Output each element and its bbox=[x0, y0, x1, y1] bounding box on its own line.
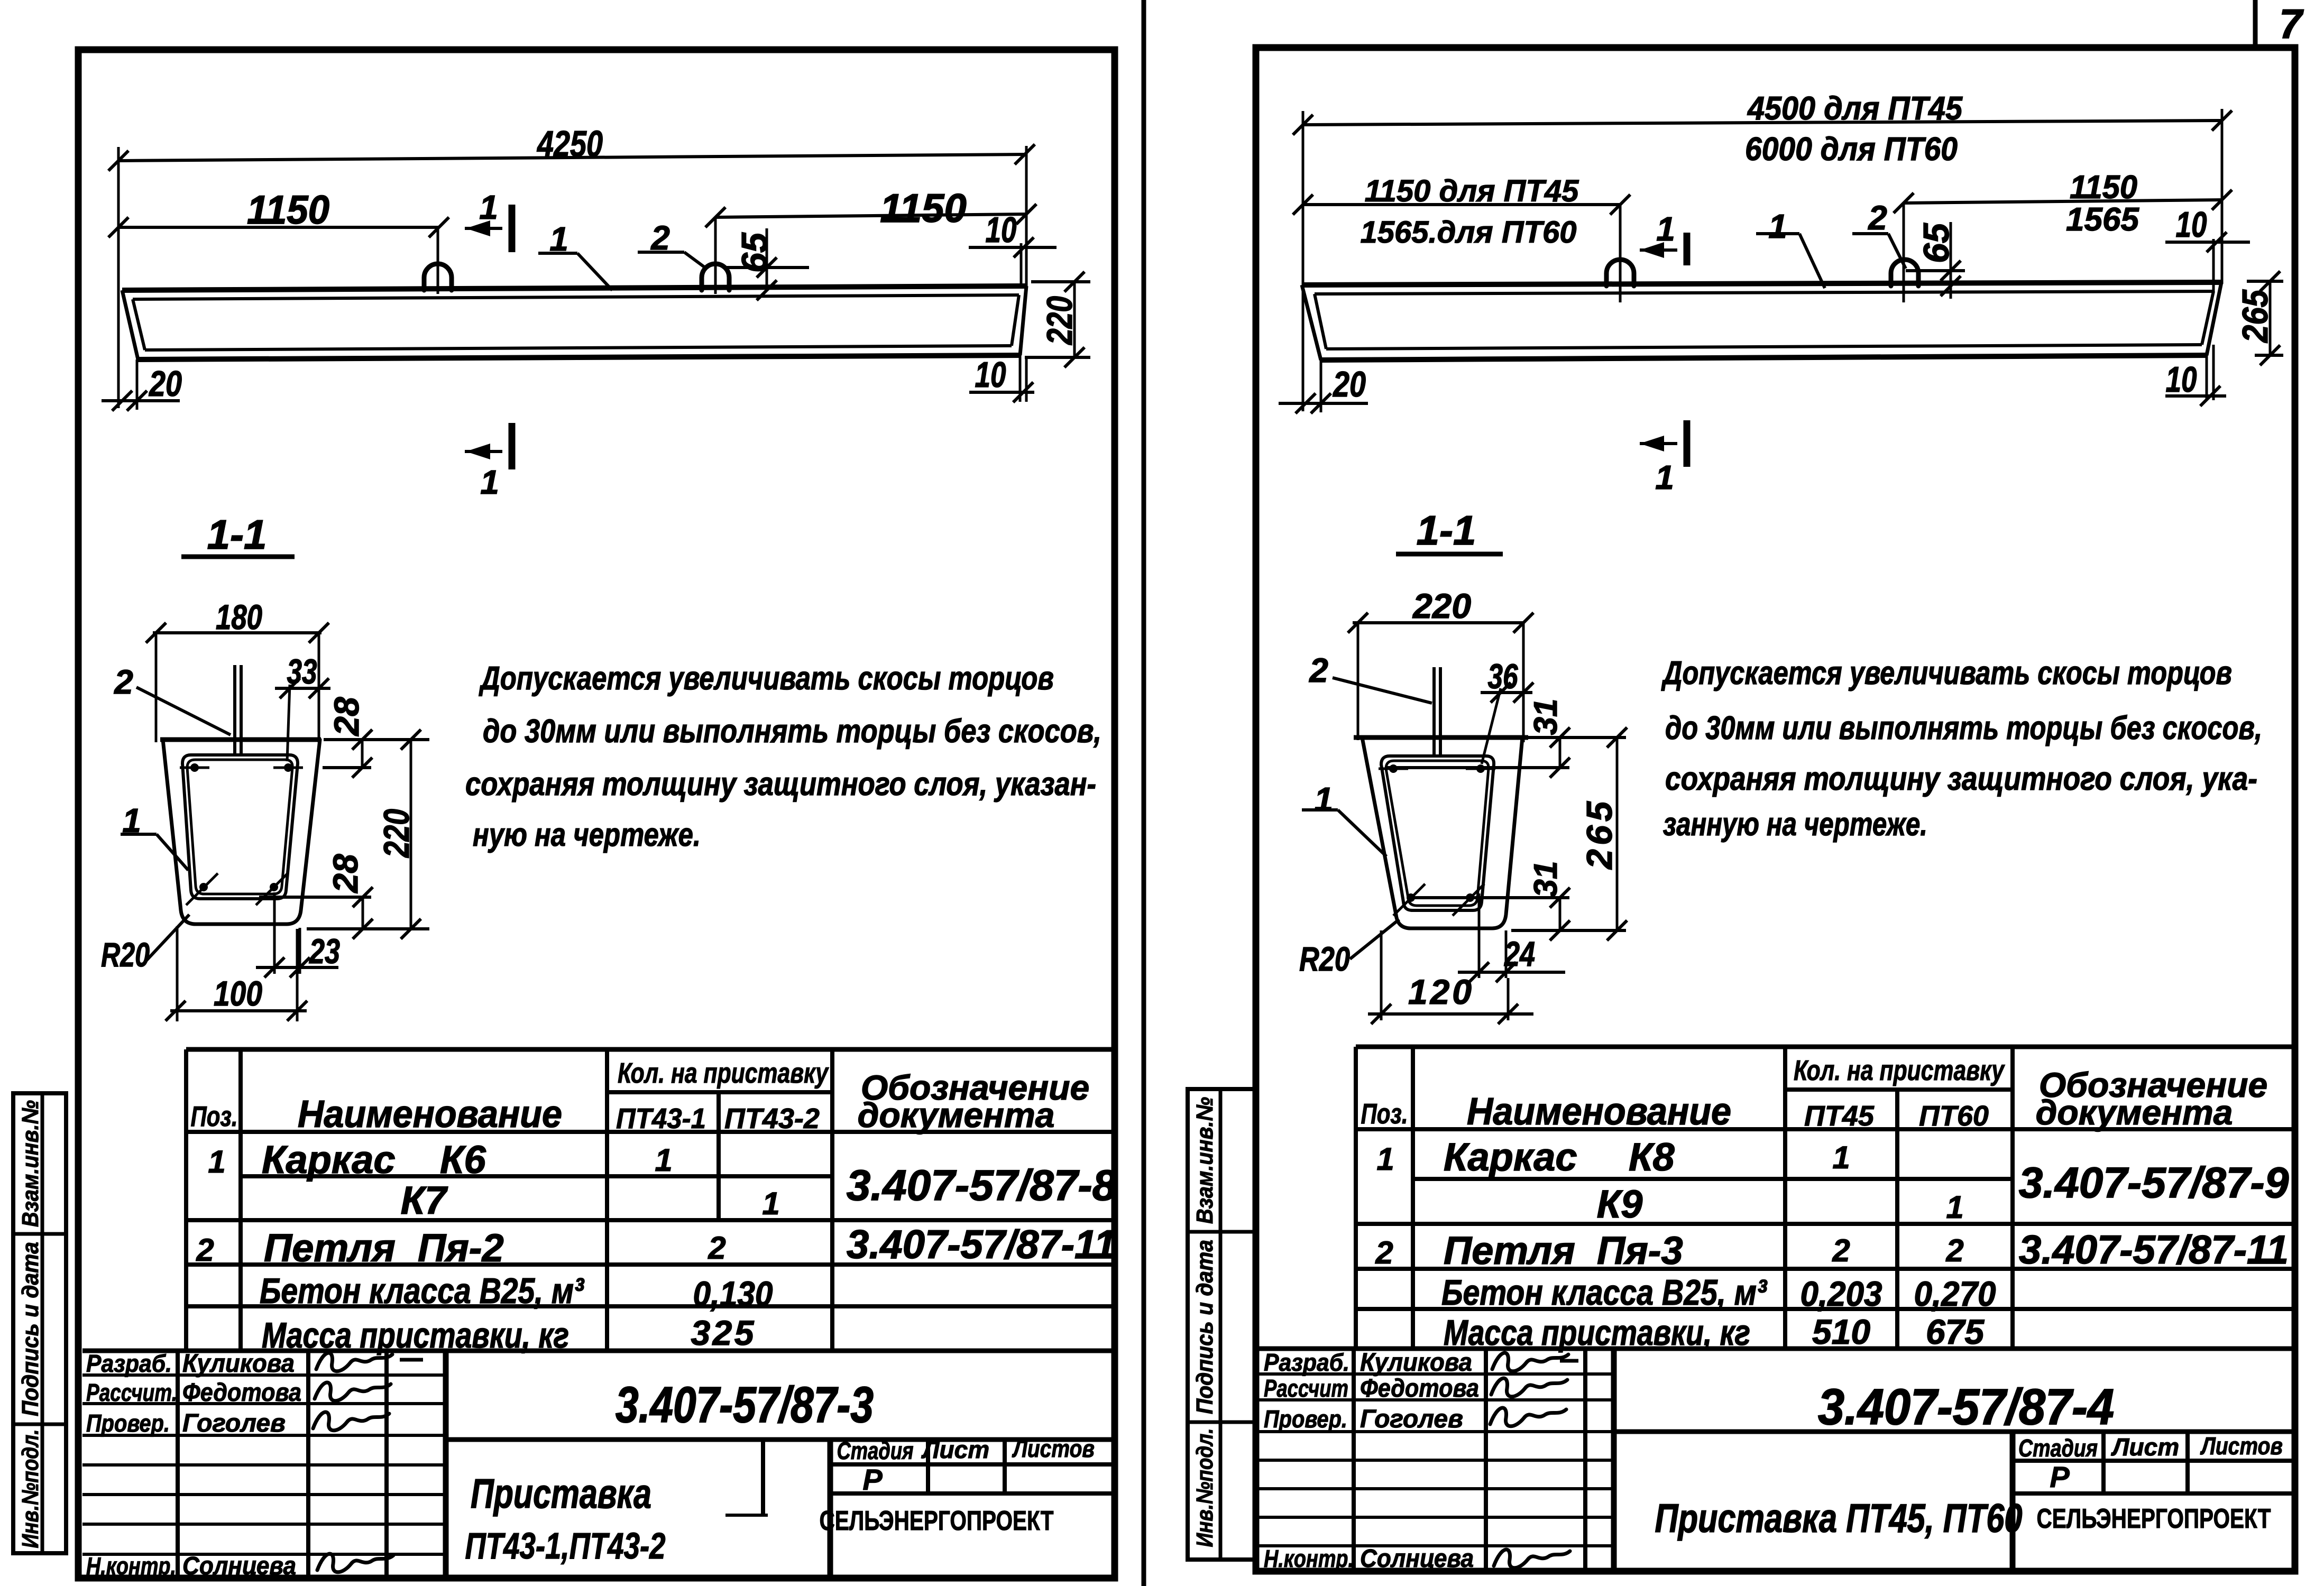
svg-text:120: 120 bbox=[1408, 972, 1472, 1011]
svg-text:Н.контр.: Н.контр. bbox=[1264, 1545, 1354, 1572]
svg-text:1150 для ПТ45: 1150 для ПТ45 bbox=[1365, 174, 1579, 208]
svg-text:К6: К6 bbox=[440, 1138, 486, 1182]
svg-text:1: 1 bbox=[549, 220, 568, 258]
svg-text:510: 510 bbox=[1812, 1312, 1870, 1351]
svg-text:3.407-57/87-3: 3.407-57/87-3 bbox=[616, 1377, 874, 1433]
svg-text:1: 1 bbox=[655, 1142, 672, 1178]
svg-text:20: 20 bbox=[148, 364, 182, 404]
svg-text:Инв.№подл.: Инв.№подл. bbox=[1192, 1428, 1218, 1547]
svg-text:1: 1 bbox=[480, 463, 499, 501]
svg-text:7: 7 bbox=[2279, 1, 2304, 47]
svg-text:10: 10 bbox=[2166, 359, 2197, 400]
svg-text:Наименование: Наименование bbox=[298, 1093, 562, 1136]
svg-text:Лист: Лист bbox=[2111, 1433, 2179, 1461]
svg-text:Гоголев: Гоголев bbox=[1360, 1405, 1463, 1433]
svg-text:1: 1 bbox=[762, 1186, 779, 1221]
svg-text:265: 265 bbox=[2235, 289, 2275, 344]
svg-text:Поз.: Поз. bbox=[1361, 1098, 1408, 1130]
svg-text:3.407-57/87-11: 3.407-57/87-11 bbox=[2019, 1228, 2289, 1273]
svg-text:2: 2 bbox=[650, 219, 670, 257]
svg-text:документа: документа bbox=[858, 1095, 1055, 1135]
svg-text:3.407-57/87-11: 3.407-57/87-11 bbox=[847, 1222, 1116, 1267]
svg-text:31: 31 bbox=[1528, 699, 1564, 735]
svg-text:Р: Р bbox=[862, 1463, 883, 1496]
svg-text:R20: R20 bbox=[101, 936, 150, 974]
svg-text:Наименование: Наименование bbox=[1467, 1091, 1731, 1133]
svg-text:Провер.: Провер. bbox=[86, 1409, 170, 1437]
svg-text:2: 2 bbox=[1832, 1233, 1850, 1268]
svg-text:Допускается увеличивать скосы: Допускается увеличивать скосы торцов bbox=[479, 660, 1054, 697]
svg-text:1: 1 bbox=[1655, 458, 1674, 496]
svg-text:занную на чертеже.: занную на чертеже. bbox=[1663, 806, 1927, 843]
svg-text:R20: R20 bbox=[1299, 940, 1350, 978]
svg-text:23: 23 bbox=[308, 932, 340, 971]
svg-text:24: 24 bbox=[1503, 934, 1535, 973]
svg-text:1: 1 bbox=[208, 1144, 225, 1179]
svg-text:2: 2 bbox=[708, 1230, 725, 1266]
svg-text:2: 2 bbox=[1868, 199, 1887, 237]
svg-text:28: 28 bbox=[327, 697, 366, 737]
svg-text:сохраняя толщину защитного сло: сохраняя толщину защитного слоя, указан- bbox=[465, 766, 1096, 803]
svg-text:Листов: Листов bbox=[1012, 1435, 1095, 1462]
svg-text:1: 1 bbox=[1832, 1140, 1850, 1175]
svg-text:Н.контр.: Н.контр. bbox=[86, 1552, 176, 1580]
svg-text:Федотова: Федотова bbox=[1360, 1375, 1479, 1403]
svg-text:Петля: Петля bbox=[1444, 1229, 1575, 1273]
svg-text:ПТ45: ПТ45 bbox=[1804, 1100, 1875, 1132]
svg-text:Кол. на приставку: Кол. на приставку bbox=[1794, 1055, 2005, 1086]
svg-text:Каркас: Каркас bbox=[1444, 1135, 1577, 1179]
svg-text:Куликова: Куликова bbox=[182, 1350, 295, 1378]
svg-text:Инв.№подл.: Инв.№подл. bbox=[17, 1430, 43, 1548]
svg-text:4250: 4250 bbox=[536, 123, 603, 164]
svg-text:Приставка: Приставка bbox=[471, 1470, 651, 1517]
svg-text:220: 220 bbox=[1412, 586, 1471, 625]
svg-text:100: 100 bbox=[214, 974, 262, 1013]
svg-text:325: 325 bbox=[691, 1313, 755, 1352]
svg-text:до 30мм или выполнять торцы бе: до 30мм или выполнять торцы без скосов, bbox=[483, 713, 1101, 750]
svg-text:Кол. на приставку: Кол. на приставку bbox=[618, 1057, 829, 1089]
svg-text:ПТ60: ПТ60 bbox=[1919, 1100, 1989, 1132]
svg-text:65: 65 bbox=[734, 232, 775, 273]
svg-text:Разраб.: Разраб. bbox=[86, 1350, 172, 1377]
svg-text:220: 220 bbox=[1040, 296, 1080, 346]
svg-text:2: 2 bbox=[1945, 1233, 1963, 1268]
svg-text:31: 31 bbox=[1528, 861, 1564, 898]
svg-text:Солнцева: Солнцева bbox=[1360, 1545, 1474, 1573]
svg-text:Взам.инв.№: Взам.инв.№ bbox=[1192, 1097, 1218, 1224]
svg-text:3.407-57/87-9: 3.407-57/87-9 bbox=[2019, 1159, 2289, 1207]
svg-text:СЕЛЬЭНЕРГОПРОЕКТ: СЕЛЬЭНЕРГОПРОЕКТ bbox=[2037, 1504, 2271, 1534]
svg-text:10: 10 bbox=[975, 355, 1006, 395]
svg-text:1150: 1150 bbox=[880, 186, 966, 231]
svg-text:3.407-57/87-8: 3.407-57/87-8 bbox=[847, 1161, 1117, 1210]
svg-text:Гоголев: Гоголев bbox=[182, 1409, 286, 1437]
svg-text:ПТ43-2: ПТ43-2 bbox=[724, 1103, 820, 1135]
svg-text:3.407-57/87-4: 3.407-57/87-4 bbox=[1818, 1379, 2114, 1435]
svg-text:2: 2 bbox=[196, 1232, 214, 1268]
svg-text:1: 1 bbox=[1768, 207, 1787, 245]
svg-text:4500 для ПТ45: 4500 для ПТ45 bbox=[1747, 90, 1963, 127]
svg-text:Стадия: Стадия bbox=[837, 1437, 914, 1464]
svg-text:1-1: 1-1 bbox=[207, 511, 267, 558]
svg-text:33: 33 bbox=[287, 652, 317, 691]
svg-text:1565.для ПТ60: 1565.для ПТ60 bbox=[1360, 215, 1576, 250]
svg-text:Рассчит: Рассчит bbox=[1264, 1375, 1348, 1402]
svg-text:Подпись и дата: Подпись и дата bbox=[1192, 1240, 1218, 1414]
svg-text:6000 для ПТ60: 6000 для ПТ60 bbox=[1745, 131, 1958, 168]
svg-text:180: 180 bbox=[216, 597, 262, 637]
svg-text:Поз.: Поз. bbox=[191, 1101, 238, 1132]
svg-text:2: 2 bbox=[1375, 1235, 1393, 1270]
svg-text:Федотова: Федотова bbox=[182, 1379, 301, 1407]
svg-text:до 30мм или выполнять торцы бе: до 30мм или выполнять торцы без скосов, bbox=[1665, 710, 2262, 746]
svg-text:Куликова: Куликова bbox=[1360, 1349, 1472, 1377]
svg-text:0,130: 0,130 bbox=[693, 1274, 773, 1313]
svg-text:1: 1 bbox=[122, 801, 141, 840]
svg-text:ПТ43-1,ПТ43-2: ПТ43-1,ПТ43-2 bbox=[465, 1525, 666, 1566]
svg-text:0,203: 0,203 bbox=[1801, 1274, 1882, 1313]
svg-text:1: 1 bbox=[1376, 1141, 1394, 1177]
svg-text:1150: 1150 bbox=[2070, 169, 2137, 206]
svg-text:Лист: Лист bbox=[921, 1436, 989, 1463]
svg-text:ную на чертеже.: ную на чертеже. bbox=[473, 817, 701, 853]
svg-text:Листов: Листов bbox=[2200, 1432, 2283, 1460]
svg-text:675: 675 bbox=[1926, 1312, 1985, 1351]
svg-text:1565: 1565 bbox=[2066, 201, 2139, 238]
svg-text:Стадия: Стадия bbox=[2018, 1434, 2098, 1462]
svg-text:Допускается увеличивать скосы: Допускается увеличивать скосы торцов bbox=[1661, 655, 2232, 691]
svg-text:1150: 1150 bbox=[247, 188, 329, 233]
svg-text:Взам.инв.№: Взам.инв.№ bbox=[17, 1100, 43, 1227]
svg-text:ПТ43-1: ПТ43-1 bbox=[616, 1103, 706, 1135]
svg-text:К9: К9 bbox=[1597, 1182, 1643, 1226]
svg-text:1: 1 bbox=[1656, 210, 1675, 248]
svg-text:Петля: Петля bbox=[264, 1226, 396, 1270]
svg-text:20: 20 bbox=[1332, 364, 1366, 404]
svg-text:К7: К7 bbox=[401, 1178, 448, 1222]
svg-text:Приставка ПТ45, ПТ60: Приставка ПТ45, ПТ60 bbox=[1655, 1496, 2023, 1541]
svg-text:1: 1 bbox=[1946, 1189, 1963, 1225]
svg-text:2: 2 bbox=[1309, 651, 1328, 689]
svg-text:265: 265 bbox=[1579, 801, 1620, 870]
svg-text:Пя-2: Пя-2 bbox=[418, 1226, 504, 1270]
svg-text:65: 65 bbox=[1916, 223, 1956, 263]
svg-text:Разраб.: Разраб. bbox=[1264, 1349, 1349, 1376]
svg-text:2: 2 bbox=[114, 663, 133, 701]
svg-text:0,270: 0,270 bbox=[1914, 1274, 1996, 1313]
svg-text:сохраняя толщину защитного сло: сохраняя толщину защитного слоя, ука- bbox=[1665, 761, 2257, 797]
svg-text:36: 36 bbox=[1488, 657, 1519, 696]
svg-text:1: 1 bbox=[479, 188, 498, 226]
svg-text:Каркас: Каркас bbox=[262, 1138, 396, 1182]
svg-text:Бетон класса В25, м³: Бетон класса В25, м³ bbox=[260, 1271, 585, 1311]
svg-text:220: 220 bbox=[376, 809, 417, 859]
svg-text:28: 28 bbox=[326, 854, 365, 894]
svg-text:документа: документа bbox=[2036, 1093, 2233, 1132]
svg-text:Р: Р bbox=[2050, 1460, 2070, 1493]
svg-text:1: 1 bbox=[1314, 780, 1333, 818]
svg-text:Бетон класса В25, м³: Бетон класса В25, м³ bbox=[1441, 1273, 1768, 1313]
svg-text:Пя-3: Пя-3 bbox=[1597, 1229, 1683, 1273]
svg-text:Солнцева: Солнцева bbox=[182, 1552, 296, 1580]
svg-text:10: 10 bbox=[2176, 205, 2207, 245]
svg-text:К8: К8 bbox=[1629, 1135, 1675, 1179]
svg-text:Провер.: Провер. bbox=[1264, 1405, 1347, 1433]
svg-text:СЕЛЬЭНЕРГОПРОЕКТ: СЕЛЬЭНЕРГОПРОЕКТ bbox=[820, 1506, 1054, 1536]
svg-text:Рассчит.: Рассчит. bbox=[86, 1379, 177, 1406]
svg-text:10: 10 bbox=[986, 210, 1017, 250]
svg-text:1-1: 1-1 bbox=[1417, 507, 1476, 554]
svg-text:Подпись и дата: Подпись и дата bbox=[17, 1242, 43, 1416]
